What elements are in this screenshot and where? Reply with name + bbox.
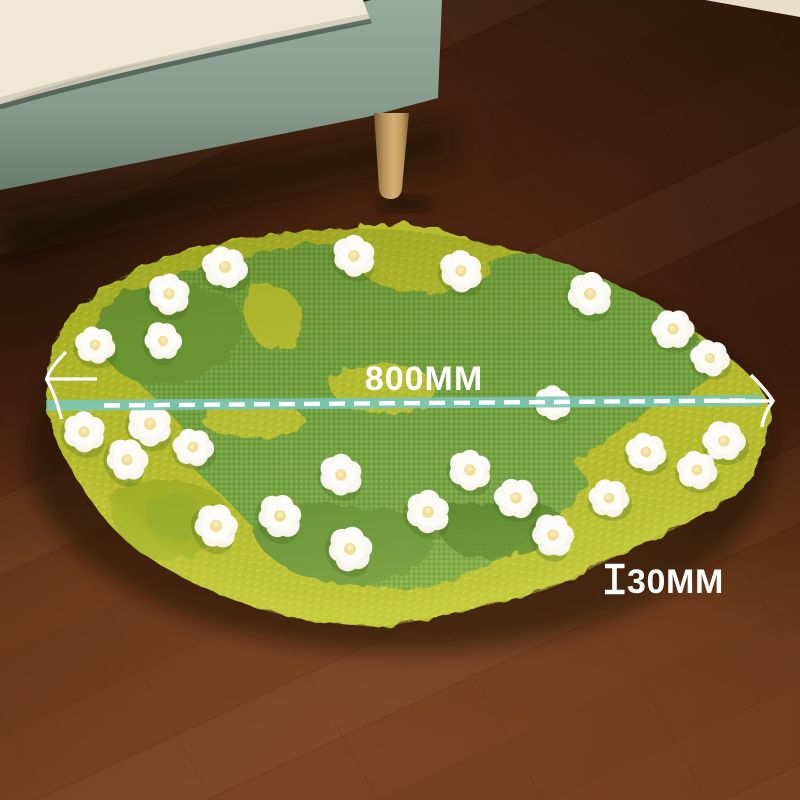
- svg-text:800MM: 800MM: [365, 360, 483, 398]
- svg-text:30MM: 30MM: [627, 563, 724, 601]
